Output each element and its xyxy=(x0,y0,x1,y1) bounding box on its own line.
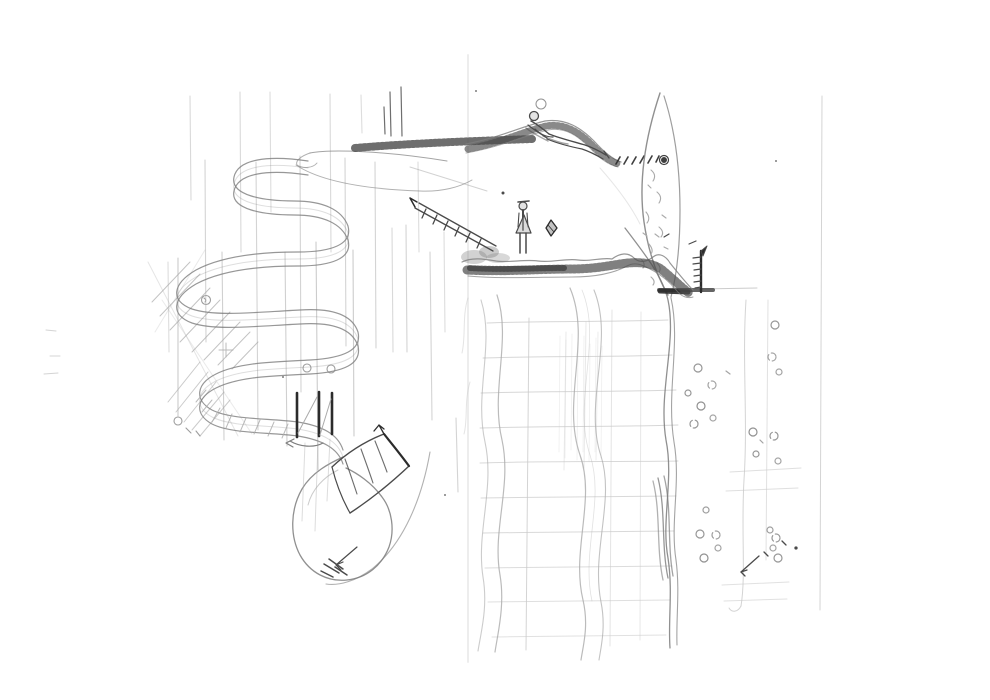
reclining-figure-head xyxy=(530,112,539,121)
paper xyxy=(0,0,990,700)
sketch-page xyxy=(0,0,990,700)
sketch-canvas xyxy=(0,0,990,700)
standing-figure-head xyxy=(519,202,527,210)
